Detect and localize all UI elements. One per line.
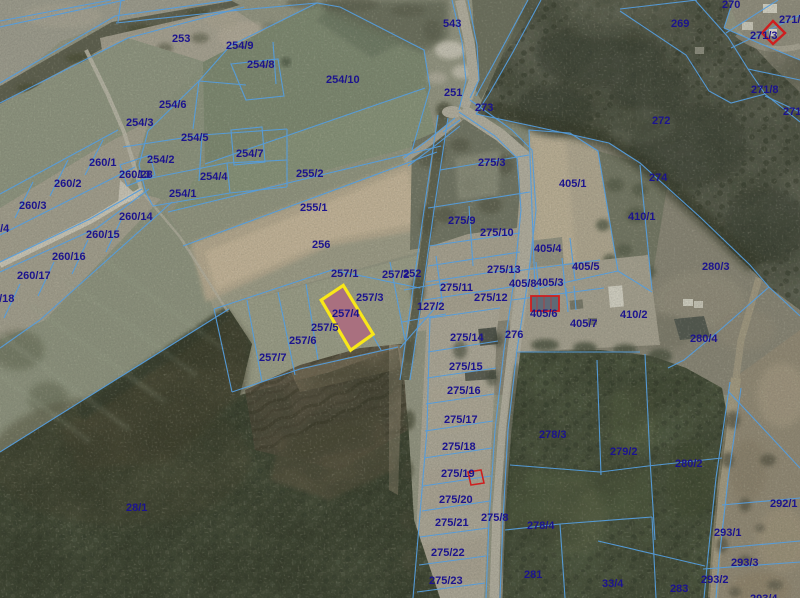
svg-text:278/4: 278/4 bbox=[527, 520, 555, 532]
svg-text:257/5: 257/5 bbox=[311, 322, 339, 334]
svg-text:257/3: 257/3 bbox=[356, 292, 384, 304]
svg-text:275/17: 275/17 bbox=[444, 414, 478, 426]
svg-text:274: 274 bbox=[649, 172, 668, 184]
svg-text:254/4: 254/4 bbox=[200, 171, 228, 183]
svg-text:271/8: 271/8 bbox=[751, 84, 779, 96]
svg-text:13: 13 bbox=[138, 169, 150, 181]
svg-text:275/11: 275/11 bbox=[440, 282, 473, 294]
svg-text:260/17: 260/17 bbox=[17, 270, 51, 282]
svg-text:256: 256 bbox=[312, 239, 330, 251]
svg-text:405/3: 405/3 bbox=[536, 277, 564, 289]
svg-text:275/20: 275/20 bbox=[439, 494, 473, 506]
svg-text:275/3: 275/3 bbox=[478, 157, 506, 169]
svg-text:292/1: 292/1 bbox=[770, 498, 798, 510]
svg-text:275/8: 275/8 bbox=[481, 512, 509, 524]
svg-text:260/2: 260/2 bbox=[54, 178, 82, 190]
svg-text:254/10: 254/10 bbox=[326, 74, 360, 86]
svg-text:255/2: 255/2 bbox=[296, 168, 324, 180]
svg-text:257/7: 257/7 bbox=[259, 352, 287, 364]
svg-text:275/9: 275/9 bbox=[448, 215, 476, 227]
svg-text:254/3: 254/3 bbox=[126, 117, 154, 129]
svg-text:257/1: 257/1 bbox=[331, 268, 359, 280]
svg-text:33/4: 33/4 bbox=[602, 578, 624, 590]
svg-text:293/3: 293/3 bbox=[731, 557, 759, 569]
svg-text:543: 543 bbox=[443, 18, 461, 30]
svg-text:271/1: 271/1 bbox=[779, 14, 800, 26]
svg-text:281: 281 bbox=[524, 569, 542, 581]
svg-text:271/3: 271/3 bbox=[750, 30, 778, 42]
svg-text:0/4: 0/4 bbox=[0, 223, 10, 235]
svg-text:405/4: 405/4 bbox=[534, 243, 562, 255]
svg-text:269: 269 bbox=[671, 18, 689, 30]
svg-text:251: 251 bbox=[444, 87, 462, 99]
svg-text:28/1: 28/1 bbox=[126, 502, 147, 514]
svg-text:272: 272 bbox=[652, 115, 670, 127]
svg-text:275/13: 275/13 bbox=[487, 264, 521, 276]
svg-text:275/14: 275/14 bbox=[450, 332, 485, 344]
svg-text:293/1: 293/1 bbox=[714, 527, 742, 539]
svg-text:278/3: 278/3 bbox=[539, 429, 567, 441]
svg-text:260/15: 260/15 bbox=[86, 229, 120, 241]
svg-text:293/2: 293/2 bbox=[701, 574, 729, 586]
svg-text:254/9: 254/9 bbox=[226, 40, 254, 52]
svg-text:275/16: 275/16 bbox=[447, 385, 481, 397]
svg-text:405/8: 405/8 bbox=[509, 278, 537, 290]
svg-text:410/1: 410/1 bbox=[628, 211, 656, 223]
svg-text:254/1: 254/1 bbox=[169, 188, 197, 200]
svg-text:254/8: 254/8 bbox=[247, 59, 275, 71]
svg-text:275/23: 275/23 bbox=[429, 575, 463, 587]
svg-text:275/15: 275/15 bbox=[449, 361, 483, 373]
svg-text:257/6: 257/6 bbox=[289, 335, 317, 347]
svg-text:127/2: 127/2 bbox=[417, 301, 445, 313]
svg-text:405/1: 405/1 bbox=[559, 178, 587, 190]
svg-text:273: 273 bbox=[475, 102, 493, 114]
svg-text:260/3: 260/3 bbox=[19, 200, 47, 212]
svg-text:254/6: 254/6 bbox=[159, 99, 187, 111]
svg-text:255/1: 255/1 bbox=[300, 202, 328, 214]
svg-text:283: 283 bbox=[670, 583, 688, 595]
svg-text:275/21: 275/21 bbox=[435, 517, 469, 529]
svg-text:252: 252 bbox=[403, 268, 421, 280]
svg-text:254/5: 254/5 bbox=[181, 132, 209, 144]
svg-text:271/5: 271/5 bbox=[783, 106, 800, 118]
svg-text:257/4: 257/4 bbox=[332, 308, 360, 320]
svg-text:276: 276 bbox=[505, 329, 523, 341]
svg-text:260/14: 260/14 bbox=[119, 211, 154, 223]
svg-text:275/22: 275/22 bbox=[431, 547, 465, 559]
svg-text:280/4: 280/4 bbox=[690, 333, 718, 345]
svg-text:410/2: 410/2 bbox=[620, 309, 648, 321]
svg-text:254/2: 254/2 bbox=[147, 154, 175, 166]
svg-text:254/7: 254/7 bbox=[236, 148, 264, 160]
svg-text:275/10: 275/10 bbox=[480, 227, 514, 239]
svg-text:293/4: 293/4 bbox=[750, 593, 778, 598]
svg-text:0/18: 0/18 bbox=[0, 293, 14, 305]
svg-text:253: 253 bbox=[172, 33, 190, 45]
svg-text:275/18: 275/18 bbox=[442, 441, 476, 453]
svg-text:270: 270 bbox=[722, 0, 740, 11]
svg-text:275/12: 275/12 bbox=[474, 292, 508, 304]
svg-text:260/16: 260/16 bbox=[52, 251, 86, 263]
svg-text:405/6: 405/6 bbox=[530, 308, 558, 320]
svg-text:279/2: 279/2 bbox=[610, 446, 638, 458]
svg-text:280/3: 280/3 bbox=[702, 261, 730, 273]
svg-text:280/2: 280/2 bbox=[675, 458, 703, 470]
svg-text:260/1: 260/1 bbox=[89, 157, 117, 169]
svg-text:275/19: 275/19 bbox=[441, 468, 475, 480]
svg-text:405/5: 405/5 bbox=[572, 261, 600, 273]
svg-text:405/7: 405/7 bbox=[570, 318, 598, 330]
